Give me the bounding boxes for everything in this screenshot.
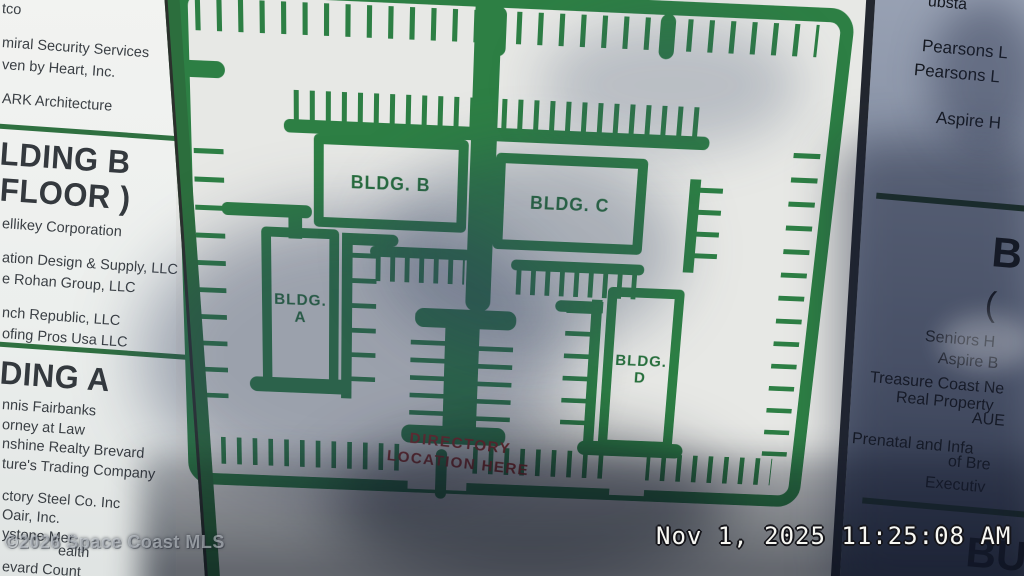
road-corner: [342, 233, 399, 247]
parking-ticks-island-right: [476, 346, 513, 427]
parking-ticks: [351, 253, 376, 392]
building-a-connector: [288, 213, 302, 239]
tenant-line: of Bre: [947, 453, 991, 475]
tenant-line: tco: [1, 1, 21, 18]
building-b-label: BLDG. B: [351, 172, 431, 196]
tenant-line: AUE: [971, 410, 1005, 431]
building-d: BLDG. D: [597, 287, 685, 451]
parking-ticks-island-left: [409, 340, 445, 423]
building-c-label: BLDG. C: [530, 192, 610, 216]
road-corner: [555, 300, 603, 313]
building-d-label-line2: D: [633, 370, 646, 387]
left-stub: [188, 60, 225, 79]
watermark: ©2026 Space Coast MLS: [5, 532, 225, 553]
right-building-heading: B: [990, 228, 1024, 278]
timestamp: Nov 1, 2025 11:25:08 AM: [656, 522, 1011, 550]
building-d-label: BLDG.: [615, 352, 668, 371]
parking-ticks: [376, 257, 465, 285]
directory-sign-photo: tco miral Security Services ven by Heart…: [0, 0, 1024, 576]
building-a-label-line2: A: [294, 309, 306, 327]
site-map: BLDG. B BLDG. C BLDG. A BLDG. D: [161, 0, 880, 543]
building-c: BLDG. C: [492, 153, 648, 255]
building-a-label: BLDG.: [274, 291, 327, 311]
building-a: BLDG. A: [261, 226, 339, 389]
building-a-heading: DING A: [0, 354, 111, 399]
parking-island-stem: [442, 326, 479, 431]
building-b: BLDG. B: [314, 133, 469, 232]
